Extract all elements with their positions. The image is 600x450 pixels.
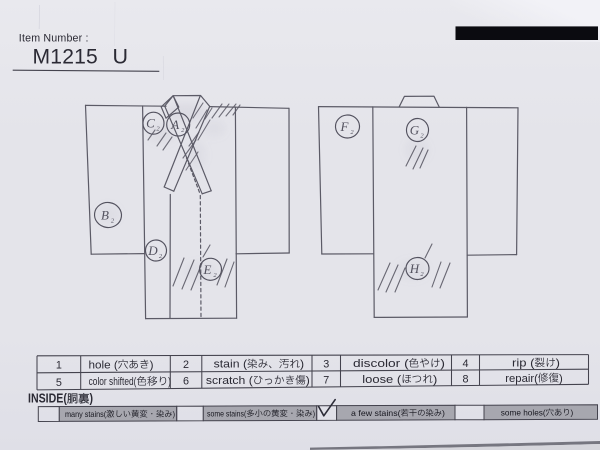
svg-text:repair(: repair( bbox=[505, 373, 538, 385]
svg-text:7: 7 bbox=[323, 375, 329, 387]
svg-text:2: 2 bbox=[350, 129, 354, 136]
svg-text:): ) bbox=[440, 358, 445, 370]
svg-text:): ) bbox=[300, 359, 304, 371]
svg-text:(: ( bbox=[63, 391, 67, 406]
svg-text:H: H bbox=[409, 261, 420, 276]
svg-text:some holes(: some holes( bbox=[501, 408, 546, 417]
svg-text:): ) bbox=[433, 374, 438, 386]
svg-text:8: 8 bbox=[463, 373, 469, 385]
svg-text:): ) bbox=[173, 410, 176, 419]
svg-text:C: C bbox=[146, 116, 155, 131]
svg-text:color shifted(: color shifted( bbox=[89, 376, 137, 388]
svg-text:3: 3 bbox=[323, 358, 329, 370]
svg-text:scratch (: scratch ( bbox=[206, 375, 253, 387]
svg-text:4: 4 bbox=[463, 358, 469, 370]
svg-text:B: B bbox=[101, 208, 109, 223]
svg-text:): ) bbox=[559, 373, 563, 385]
svg-text:): ) bbox=[571, 408, 574, 417]
svg-text:INSIDE: INSIDE bbox=[28, 391, 64, 406]
svg-text:): ) bbox=[313, 409, 316, 418]
svg-text:hole (: hole ( bbox=[89, 359, 119, 371]
svg-text:E: E bbox=[203, 262, 212, 277]
svg-text:): ) bbox=[442, 409, 445, 418]
svg-text:some stains(: some stains( bbox=[207, 409, 247, 418]
svg-text:F: F bbox=[340, 119, 350, 134]
svg-text:2: 2 bbox=[420, 133, 424, 140]
svg-text:6: 6 bbox=[183, 376, 189, 388]
svg-text:): ) bbox=[556, 358, 561, 370]
svg-text:2: 2 bbox=[183, 359, 189, 371]
svg-text:discolor (: discolor ( bbox=[353, 358, 409, 370]
svg-text:2: 2 bbox=[181, 127, 185, 134]
svg-text:rip (: rip ( bbox=[512, 358, 535, 370]
svg-text:loose (: loose ( bbox=[362, 374, 401, 386]
svg-text:A: A bbox=[170, 117, 179, 132]
svg-text:Item Number :: Item Number : bbox=[19, 32, 89, 44]
svg-text:D: D bbox=[147, 243, 158, 258]
svg-text:U: U bbox=[113, 45, 129, 69]
svg-text:5: 5 bbox=[56, 377, 62, 389]
svg-text:): ) bbox=[168, 376, 171, 388]
svg-text:1: 1 bbox=[56, 360, 62, 372]
svg-text:): ) bbox=[150, 359, 154, 371]
svg-text:): ) bbox=[89, 391, 93, 406]
svg-text:M1215: M1215 bbox=[33, 45, 99, 69]
svg-text:a few stains(: a few stains( bbox=[351, 409, 401, 418]
svg-text:many stains(: many stains( bbox=[65, 410, 106, 419]
svg-text:G: G bbox=[410, 123, 420, 138]
svg-text:stain (: stain ( bbox=[214, 359, 248, 371]
svg-text:): ) bbox=[306, 375, 310, 387]
